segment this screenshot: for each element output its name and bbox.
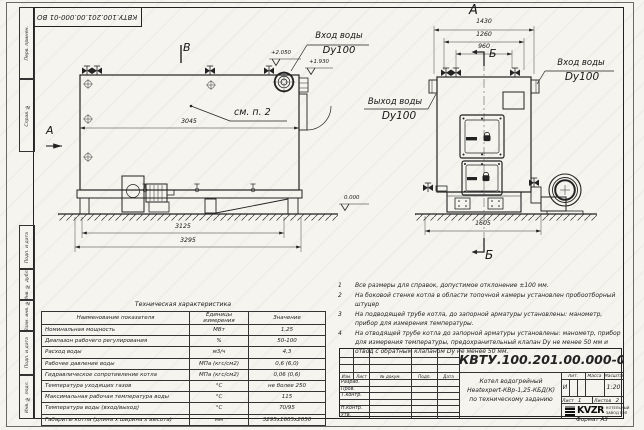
side-leaders <box>190 45 369 204</box>
scale-value: 1:20 <box>604 384 623 391</box>
kvzr-logo-icon <box>565 406 575 416</box>
lit-value: И <box>561 384 569 391</box>
role-prov: Пров. <box>341 387 369 392</box>
table-row: Температура воды (вход/выход)°С70/95 <box>42 403 326 414</box>
title-block: Изм. Лист № докум. Подп. Дата Разраб. Пр… <box>339 348 622 417</box>
table-row: Гидравлическое сопротивление котлаМПа (к… <box>42 369 326 380</box>
elevation-mark-icon <box>341 204 349 211</box>
front-inlet-dn: Dy100 <box>556 72 608 83</box>
section-b-top-label: Б <box>489 48 497 60</box>
row-name: Температура уходящих газов <box>42 380 190 391</box>
line <box>369 349 370 418</box>
row-units: °С <box>190 403 249 414</box>
row-value: 115 <box>249 392 326 403</box>
line <box>411 349 412 418</box>
lug-icon <box>206 80 216 90</box>
row-name: Рабочее давление воды <box>42 358 190 369</box>
line <box>340 357 459 358</box>
valve-icon <box>441 68 451 77</box>
tech-header-units: Единицы измерения <box>190 312 249 325</box>
lower-door <box>462 161 502 195</box>
anchor-icon <box>250 184 255 192</box>
row-units: МПа (кгс/см2) <box>190 369 249 380</box>
row-units: МВт <box>190 325 249 336</box>
valve-icon <box>264 66 274 75</box>
valve-icon <box>82 66 92 75</box>
dim-3045: 3045 <box>168 119 210 126</box>
anchor-icon <box>194 184 199 192</box>
dim-1605: 1605 <box>463 221 503 228</box>
line <box>592 396 593 403</box>
front-outlet-dn: Dy100 <box>376 111 422 122</box>
row-value: 0,06 (0,6) <box>249 369 326 380</box>
row-value: 1,25 <box>249 325 326 336</box>
rev-header-data: Дата <box>438 374 459 379</box>
section-a-label: А <box>46 125 54 137</box>
valve-icon <box>451 68 461 77</box>
tech-header-row: Наименование показателя Единицы измерени… <box>42 312 326 325</box>
product-name-line3: по техническому заданию <box>469 396 552 403</box>
note-number: 3 <box>338 310 355 328</box>
row-name: Номинальная мощность <box>42 325 190 336</box>
kvzr-logo-text: KVZR <box>577 405 604 416</box>
front-outlet-label: Выход воды <box>362 98 428 107</box>
company-cell: KVZR КОТЕЛЬНЫЙ ЗАВОД РЭП <box>561 403 623 418</box>
rev-header-doc: № докум. <box>370 374 411 379</box>
elevation-1930: +1.930 <box>309 60 329 66</box>
row-name: Гидравлическое сопротивление котла <box>42 369 190 380</box>
dim-3295: 3295 <box>167 238 209 245</box>
row-name: Расход воды <box>42 347 190 358</box>
mass-label: Масса <box>585 374 604 379</box>
elevation-2050: +2.050 <box>271 51 291 57</box>
note-number: 2 <box>338 291 355 309</box>
row-units: % <box>190 336 249 347</box>
side-inlet-label: Вход воды <box>308 32 370 41</box>
row-units: МПа (кгс/см2) <box>190 358 249 369</box>
format-label: Формат А3 <box>576 418 608 424</box>
role-nkontr: Н.контр. <box>341 406 369 411</box>
line <box>577 379 578 396</box>
note-item: 2 На боковой стенке котла в области топо… <box>338 291 624 309</box>
lit-label: Лит. <box>561 374 585 379</box>
upper-door <box>460 115 504 158</box>
row-name: Диапазон рабочего регулирования <box>42 336 190 347</box>
note-text: На боковой стенке котла в области топочн… <box>355 291 624 309</box>
note-item: 3 На подводящей трубе котла, до запорной… <box>338 310 624 328</box>
row-name: Температура воды (вход/выход) <box>42 403 190 414</box>
product-name-line1: Котел водогрейный <box>480 378 543 385</box>
product-name: Котел водогрейный Heatexpert-КВр-1,25-КБ… <box>461 377 561 404</box>
row-units: м3/ч <box>190 347 249 358</box>
table-row: Рабочее давление водыМПа (кгс/см2)0,6 (6… <box>42 358 326 369</box>
tech-header-value: Значение <box>249 312 326 325</box>
table-row: Диапазон рабочего регулирования%50-100 <box>42 336 326 347</box>
company-name-line2: ЗАВОД РЭП <box>606 411 630 415</box>
burner-motor <box>122 176 174 212</box>
elevation-mark-icon <box>272 59 280 66</box>
line <box>569 379 570 396</box>
row-name: Максимальная рабочая температура воды <box>42 392 190 403</box>
valve-icon <box>92 66 102 75</box>
table-row: Габариты котла (длина х ширина х высота)… <box>42 414 326 425</box>
elevation-zero: 0.000 <box>344 196 359 202</box>
section-b-bottom-label: Б <box>485 249 493 262</box>
lug-icon <box>83 79 93 89</box>
see-note-callout: см. п. 2 <box>234 108 271 118</box>
doc-number-titleblock: КВТУ.100.201.00.000-01 ВО <box>459 352 623 367</box>
side-inlet-dn: Dy100 <box>316 46 362 57</box>
panel <box>503 92 524 109</box>
role-tkontr: Т.контр. <box>341 393 369 398</box>
lug-icon <box>83 114 93 124</box>
company-name: КОТЕЛЬНЫЙ ЗАВОД РЭП <box>606 406 630 414</box>
dim-1430: 1430 <box>464 19 504 26</box>
scale-label: Масштаб <box>604 374 623 379</box>
valve-icon <box>510 68 520 77</box>
role-razrab: Разраб. <box>341 380 369 385</box>
row-units: °С <box>190 380 249 391</box>
rev-header-list: Лист <box>354 374 369 379</box>
product-name-line2: Heatexpert-КВр-1,25-КБД(К) <box>467 387 555 394</box>
row-value: 50-100 <box>249 336 326 347</box>
valve-icon <box>205 66 215 75</box>
note-item: 1 Все размеры для справок, допустимое от… <box>338 281 624 290</box>
row-value: 4,3 <box>249 347 326 358</box>
row-value: 70/95 <box>249 403 326 414</box>
inlet-flange <box>273 71 295 93</box>
row-value: 3295х1605х2050 <box>249 414 326 425</box>
table-row: Температура уходящих газов°Сне более 250 <box>42 380 326 391</box>
note-text: Все размеры для справок, допустимое откл… <box>355 281 624 290</box>
note-text: На подводящей трубе котла, до запорной а… <box>355 310 624 328</box>
dim-1260: 1260 <box>464 32 504 39</box>
front-view-label: А <box>469 4 478 18</box>
elevation-mark-icon <box>307 68 315 75</box>
note-number: 1 <box>338 281 355 290</box>
row-name: Габариты котла (длина х ширина х высота) <box>42 414 190 425</box>
rev-header-podp: Подп. <box>412 374 437 379</box>
row-value: 0,6 (6,0) <box>249 358 326 369</box>
door-lock-icon <box>483 172 489 180</box>
table-row: Расход водым3/ч4,3 <box>42 347 326 358</box>
drawing-sheet: Перв. примен. Справ. № Подп. и дата Инв.… <box>0 0 644 430</box>
table-row: Максимальная рабочая температура воды°С1… <box>42 392 326 403</box>
rev-header-izm: Изм. <box>340 374 353 379</box>
valve-icon <box>423 183 433 192</box>
dim-960: 960 <box>464 44 504 51</box>
lug-icon <box>83 152 93 162</box>
row-units: мм <box>190 414 249 425</box>
company-name-line1: КОТЕЛЬНЫЙ <box>606 406 630 410</box>
tech-table: Наименование показателя Единицы измерени… <box>41 311 326 426</box>
line <box>340 399 459 400</box>
line <box>340 364 459 365</box>
notes-list: 1 Все размеры для справок, допустимое от… <box>338 281 624 357</box>
row-units: °С <box>190 392 249 403</box>
tech-table-title: Техническая характеристика <box>41 302 325 309</box>
row-value: не более 250 <box>249 380 326 391</box>
role-utv: Утв. <box>341 413 369 418</box>
view-b-label: В <box>183 42 191 54</box>
line <box>561 379 623 380</box>
side-view <box>46 45 369 252</box>
table-row: Номинальная мощностьМВт1,25 <box>42 325 326 336</box>
dim-3125: 3125 <box>162 224 204 231</box>
line <box>437 349 438 418</box>
anchor-icon <box>142 184 147 192</box>
door-lock-icon <box>484 132 490 140</box>
front-dimensions <box>425 26 541 235</box>
tech-header-name: Наименование показателя <box>42 312 190 325</box>
front-inlet-label: Вход воды <box>546 59 616 68</box>
